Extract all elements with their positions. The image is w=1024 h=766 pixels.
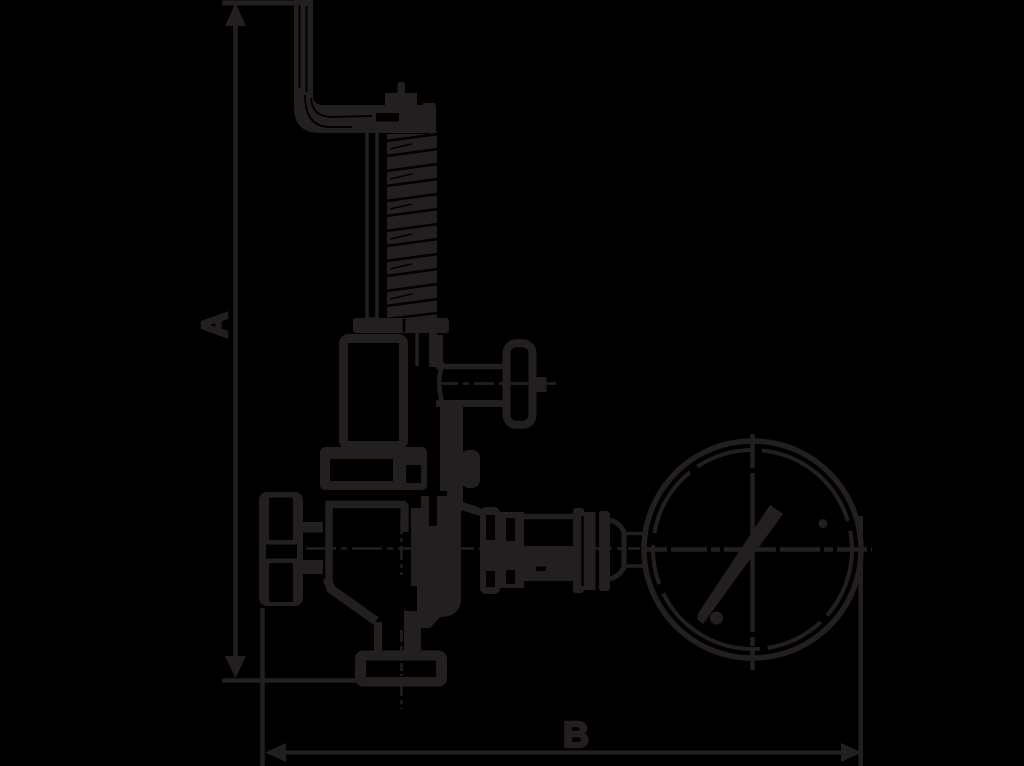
svg-text:A: A	[194, 312, 235, 338]
svg-text:B: B	[563, 714, 589, 755]
